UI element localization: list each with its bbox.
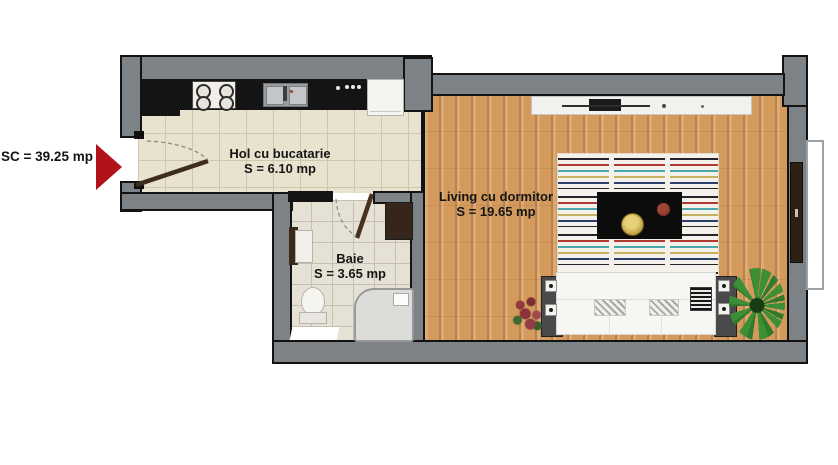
armrest-cushion	[545, 304, 557, 316]
sink-accessory	[290, 90, 293, 93]
bath-cabinet	[385, 202, 413, 240]
wall-left-upper	[120, 55, 142, 138]
hall-label: Hol cu bucatarie S = 6.10 mp	[195, 146, 365, 176]
tub-faucet-icon	[393, 293, 409, 306]
coffee-table	[597, 192, 682, 239]
sofa-pillow	[594, 299, 626, 316]
cushion-button	[722, 307, 726, 311]
entry-door-jamb-top	[134, 131, 144, 139]
wall-kitchen-living-corner	[403, 57, 433, 112]
fridge-detail	[370, 111, 401, 112]
wall-top-right-corner	[782, 55, 808, 107]
wall-bottom-main	[272, 340, 808, 364]
cushion-button	[722, 284, 726, 288]
total-area-label: SC = 39.25 mp	[0, 149, 94, 164]
faucet-icon	[283, 86, 287, 101]
console-knob	[701, 105, 704, 108]
console-knob	[662, 104, 666, 108]
wall-top-kitchen	[120, 55, 432, 81]
living-name: Living cu dormitor	[425, 189, 567, 204]
entry-door-jamb-bottom	[134, 181, 144, 189]
potted-plant-icon	[729, 268, 785, 340]
wall-bathroom-top-left	[288, 191, 333, 202]
toilet-tank	[299, 312, 327, 324]
bath-area: S = 3.65 mp	[290, 266, 410, 281]
hall-name: Hol cu bucatarie	[195, 146, 365, 161]
living-area: S = 19.65 mp	[425, 204, 567, 219]
bath-name: Baie	[290, 251, 410, 266]
window-handle	[795, 209, 798, 217]
flower-bouquet-icon	[510, 293, 544, 333]
bathtub-icon	[354, 288, 414, 342]
red-bowl-icon	[657, 203, 670, 216]
window-icon	[790, 162, 803, 263]
cushion-button	[549, 308, 553, 312]
sofa-pillow	[649, 299, 679, 316]
stove-burner	[196, 96, 211, 111]
tv-console	[531, 96, 752, 115]
sink-basin-left	[266, 86, 284, 105]
cushion-button	[549, 284, 553, 288]
wall-top-living	[427, 73, 785, 96]
armrest-cushion	[718, 280, 730, 292]
counter-knob	[357, 85, 361, 89]
soundbar-line	[562, 105, 650, 107]
sofa-throw-blanket	[690, 287, 712, 311]
bath-mat	[290, 327, 340, 340]
wall-bathroom-left	[272, 192, 292, 344]
wall-bottom-kitchen	[120, 192, 293, 211]
fridge-icon	[367, 79, 404, 116]
stove-burner	[219, 96, 234, 111]
kitchen-counter-left	[141, 79, 180, 116]
counter-knob	[345, 85, 349, 89]
window-sill	[806, 140, 824, 290]
bath-label: Baie S = 3.65 mp	[290, 251, 410, 281]
armrest-cushion	[545, 280, 557, 292]
gold-plate-icon	[621, 213, 644, 236]
stove-top-icon	[192, 81, 236, 109]
floor-plan: SC = 39.25 mp Hol cu bucatarie S = 6.10 …	[0, 0, 838, 465]
counter-knob	[351, 85, 355, 89]
hall-area: S = 6.10 mp	[195, 161, 365, 176]
entrance-arrow-icon	[96, 144, 122, 190]
sink-basin-right	[289, 86, 307, 105]
counter-knob	[336, 86, 340, 90]
living-label: Living cu dormitor S = 19.65 mp	[425, 189, 567, 219]
kitchen-sink-icon	[263, 83, 308, 107]
hall-living-threshold	[421, 112, 425, 193]
